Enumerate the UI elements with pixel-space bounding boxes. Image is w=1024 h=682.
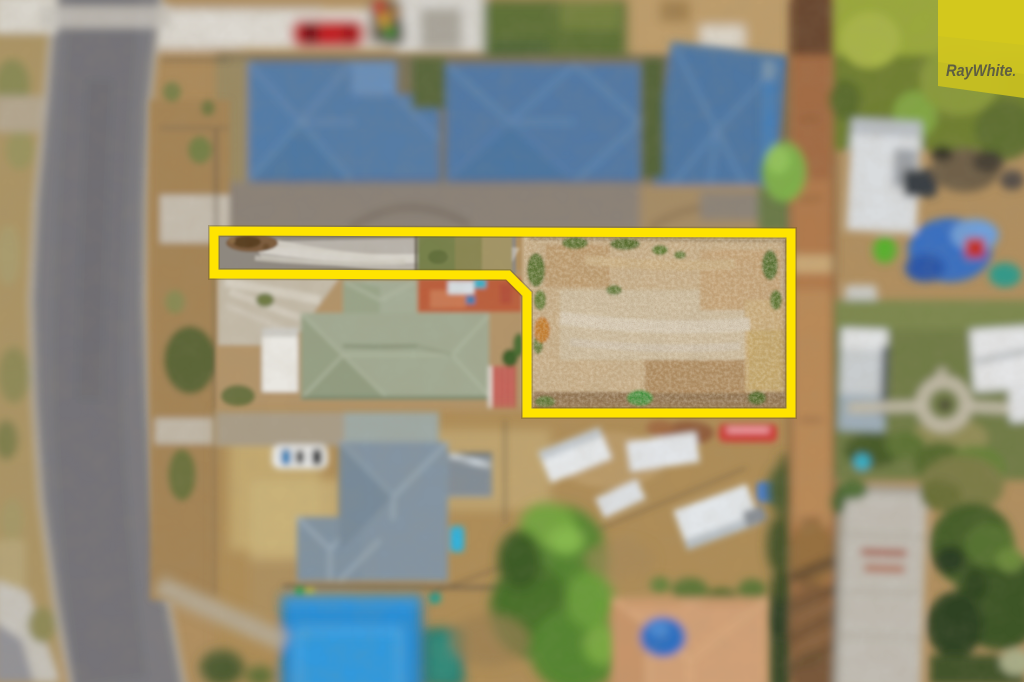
svg-text:RayWhite.: RayWhite. bbox=[946, 62, 1016, 80]
